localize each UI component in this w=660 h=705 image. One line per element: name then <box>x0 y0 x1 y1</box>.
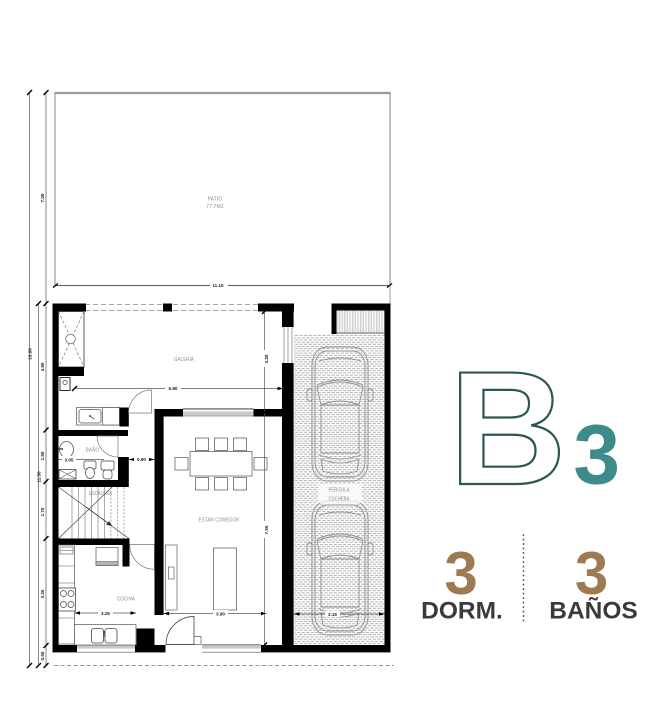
svg-text:ESCALERA: ESCALERA <box>89 491 112 497</box>
svg-text:B: B <box>449 338 566 519</box>
svg-text:BAÑO: BAÑO <box>86 447 100 454</box>
svg-text:7.00: 7.00 <box>40 193 45 202</box>
svg-text:PATIO: PATIO <box>208 197 223 203</box>
svg-text:1.70: 1.70 <box>40 507 45 516</box>
svg-text:ESTAR COMEDOR: ESTAR COMEDOR <box>199 518 240 524</box>
svg-text:11.50: 11.50 <box>37 471 42 483</box>
svg-text:0.50: 0.50 <box>40 651 45 660</box>
svg-text:3.05: 3.05 <box>65 458 74 463</box>
svg-text:3.20: 3.20 <box>264 354 269 363</box>
svg-text:3.90: 3.90 <box>216 612 225 617</box>
svg-text:3.25: 3.25 <box>101 611 110 616</box>
svg-text:COCINA: COCINA <box>117 597 135 603</box>
svg-text:DORM.: DORM. <box>421 598 503 625</box>
svg-text:4.85: 4.85 <box>40 362 45 371</box>
svg-text:COCHERA: COCHERA <box>329 497 350 503</box>
svg-text:BAÑOS: BAÑOS <box>549 597 637 625</box>
svg-text:3.25: 3.25 <box>40 589 45 598</box>
svg-text:6.80: 6.80 <box>169 386 178 391</box>
svg-text:1.50: 1.50 <box>40 451 45 460</box>
svg-text:PÉRGOLA: PÉRGOLA <box>329 487 350 494</box>
svg-text:3.15: 3.15 <box>328 612 337 617</box>
svg-text:0.90: 0.90 <box>137 457 146 462</box>
svg-text:7.55: 7.55 <box>264 525 269 534</box>
svg-text:GALERÍA: GALERÍA <box>174 356 194 363</box>
svg-text:11.10: 11.10 <box>212 283 224 288</box>
svg-text:3: 3 <box>573 408 620 502</box>
svg-text:77.7M2: 77.7M2 <box>206 204 224 210</box>
svg-text:18.98: 18.98 <box>28 348 33 360</box>
